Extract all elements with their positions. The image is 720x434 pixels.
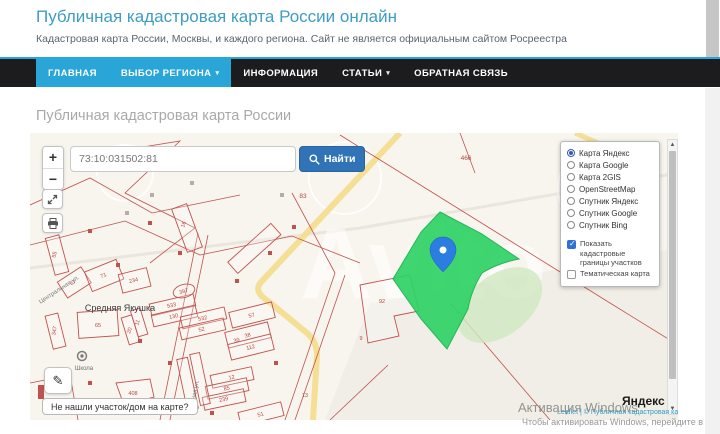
layer-option[interactable]: Спутник Bing xyxy=(567,220,653,231)
map-label: 13 xyxy=(302,393,308,399)
radio-icon[interactable] xyxy=(567,185,575,193)
expand-icon xyxy=(47,194,58,205)
windows-activation-watermark: Активация Windows xyxy=(518,400,638,415)
pencil-icon: ✎ xyxy=(53,373,64,389)
radio-icon[interactable] xyxy=(567,221,575,229)
print-button[interactable] xyxy=(42,213,63,233)
map-label: 65 xyxy=(95,323,101,329)
fullscreen-button[interactable] xyxy=(42,189,63,209)
nav-item[interactable]: ГЛАВНАЯ xyxy=(36,59,109,87)
radio-icon[interactable] xyxy=(567,209,575,217)
nav-item[interactable]: ИНФОРМАЦИЯ xyxy=(231,59,330,87)
map-label: Школа xyxy=(75,366,94,372)
map-label: Средняя Якушка xyxy=(85,303,155,313)
windows-activation-hint: Чтобы активировать Windows, перейдите в xyxy=(522,417,703,427)
map-label: 83 xyxy=(299,193,307,200)
map-label: 408 xyxy=(128,391,137,397)
not-found-link[interactable]: Не нашли участок/дом на карте? xyxy=(42,398,198,415)
main-nav: ГЛАВНАЯВЫБОР РЕГИОНА▾ИНФОРМАЦИЯСТАТЬИ▾ОБ… xyxy=(0,57,720,87)
page: Публичная кадастровая карта России онлай… xyxy=(0,0,720,434)
chevron-down-icon: ▾ xyxy=(386,69,390,77)
search-bar: Найти xyxy=(70,146,365,172)
map-canvas[interactable]: Avito xyxy=(30,133,678,420)
map-scrollbar: ▲ ▼ xyxy=(667,139,678,415)
radio-icon[interactable] xyxy=(567,149,575,157)
site-header: Публичная кадастровая карта России онлай… xyxy=(36,7,567,45)
map-label: 9 xyxy=(359,336,362,342)
overlay-option[interactable]: Показать кадастровые границы участков xyxy=(567,239,653,268)
page-title: Публичная кадастровая карта России xyxy=(36,108,291,124)
print-icon xyxy=(47,218,59,229)
radio-icon[interactable] xyxy=(567,197,575,205)
map-label: 12 xyxy=(228,374,235,381)
nav-item[interactable]: СТАТЬИ▾ xyxy=(330,59,402,87)
search-button[interactable]: Найти xyxy=(299,146,365,172)
scroll-up-icon[interactable]: ▲ xyxy=(670,140,676,150)
search-input[interactable] xyxy=(70,146,296,172)
site-subtitle: Кадастровая карта России, Москвы, и кажд… xyxy=(36,33,567,45)
zoom-out-button[interactable]: − xyxy=(43,168,63,189)
nav-item[interactable]: ОБРАТНАЯ СВЯЗЬ xyxy=(402,59,520,87)
chevron-down-icon: ▾ xyxy=(215,69,219,77)
zoom-in-button[interactable]: + xyxy=(43,147,63,168)
layer-option[interactable]: Карта Яндекс xyxy=(567,148,653,159)
scrollbar-thumb[interactable] xyxy=(669,151,676,379)
checkbox-icon[interactable] xyxy=(567,240,576,249)
layer-option[interactable]: OpenStreetMap xyxy=(567,184,653,195)
radio-icon[interactable] xyxy=(567,173,575,181)
map-label: 466 xyxy=(461,155,472,162)
layer-option[interactable]: Карта Google xyxy=(567,160,653,171)
map-label: 85 xyxy=(223,385,230,392)
search-button-label: Найти xyxy=(324,153,355,165)
layer-option[interactable]: Спутник Яндекс xyxy=(567,196,653,207)
map-label: 92 xyxy=(379,299,385,305)
layer-option[interactable]: Спутник Google xyxy=(567,208,653,219)
draw-button[interactable]: ✎ xyxy=(44,367,72,394)
zoom-control: + − xyxy=(42,146,64,190)
checkbox-icon[interactable] xyxy=(567,270,576,279)
site-title[interactable]: Публичная кадастровая карта России онлай… xyxy=(36,7,567,27)
browser-scrollbar-thumb[interactable] xyxy=(706,0,719,57)
browser-scrollbar-track[interactable] xyxy=(705,88,720,434)
search-icon xyxy=(309,154,320,165)
nav-item[interactable]: ВЫБОР РЕГИОНА▾ xyxy=(109,59,231,87)
layer-option[interactable]: Карта 2GIS xyxy=(567,172,653,183)
overlay-option[interactable]: Тематическая карта xyxy=(567,269,653,279)
school-icon xyxy=(78,352,87,361)
layers-panel: Карта ЯндексКарта GoogleКарта 2GISOpenSt… xyxy=(560,141,660,287)
radio-icon[interactable] xyxy=(567,161,575,169)
